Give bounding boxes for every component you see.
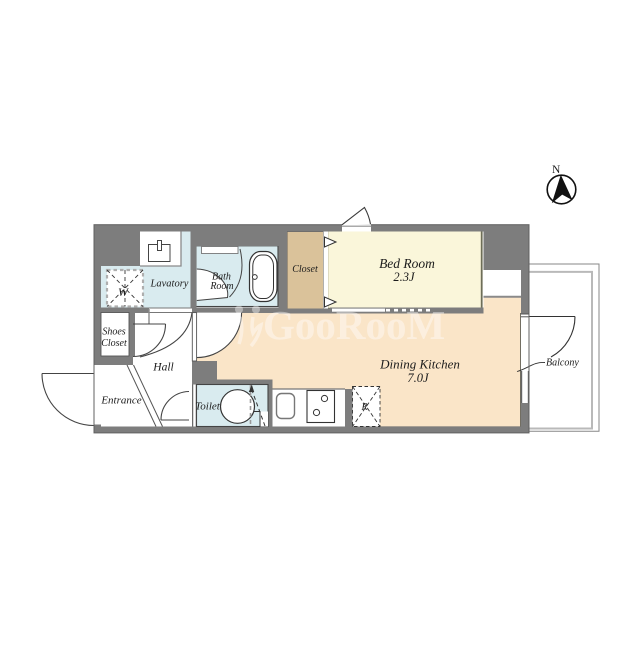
svg-text:Entrance: Entrance (100, 395, 141, 407)
svg-text:Closet: Closet (101, 338, 127, 349)
svg-text:Balcony: Balcony (546, 358, 579, 369)
svg-text:2.3J: 2.3J (393, 270, 416, 284)
svg-text:R: R (361, 402, 368, 413)
svg-text:Shoes: Shoes (102, 327, 125, 338)
svg-text:Closet: Closet (292, 264, 318, 275)
svg-text:Toilet: Toilet (195, 401, 221, 413)
svg-text:Bed Room: Bed Room (379, 256, 435, 271)
svg-text:Lavatory: Lavatory (150, 279, 189, 290)
svg-text:Dining Kitchen: Dining Kitchen (379, 357, 460, 372)
svg-text:GooRooM: GooRooM (263, 302, 445, 348)
svg-text:Room: Room (209, 281, 233, 292)
svg-text:Hall: Hall (152, 362, 173, 374)
svg-text:7.0J: 7.0J (407, 371, 430, 385)
svg-text:W: W (118, 285, 129, 299)
svg-text:N: N (552, 164, 561, 176)
